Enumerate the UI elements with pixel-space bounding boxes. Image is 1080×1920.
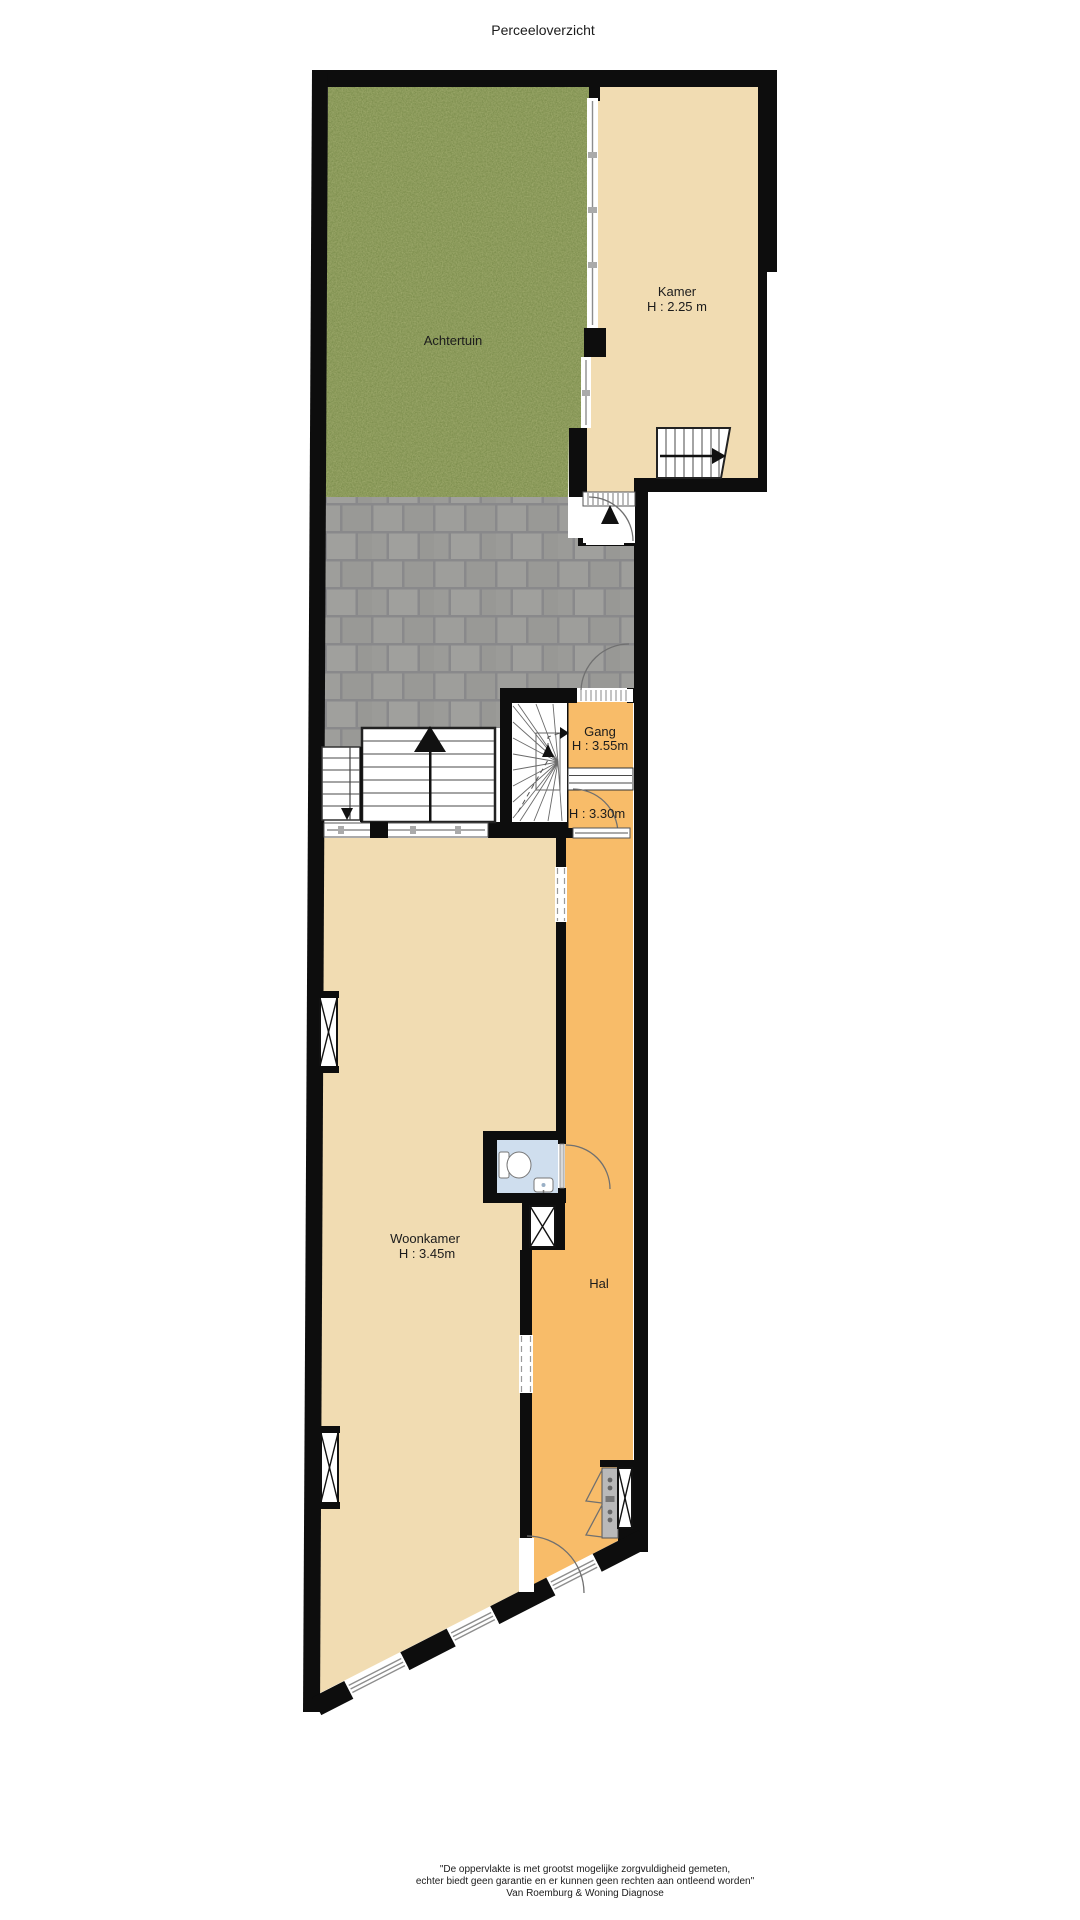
- vestibule-threshold-cap: [566, 828, 573, 838]
- disclaimer-line-1: "De oppervlakte is met grootst mogelijke…: [440, 1864, 730, 1875]
- grass-texture: [315, 80, 605, 505]
- floorplan-canvas: Perceeloverzicht Achtertuin Kamer H : 2.…: [0, 0, 1080, 1920]
- area-fills: [315, 80, 758, 1693]
- side-staircase: [322, 747, 363, 822]
- north-band-center: [512, 822, 566, 838]
- toilet-icon: [499, 1152, 531, 1178]
- toilet-door-leaf: [560, 1144, 564, 1188]
- left-window-upper: [318, 991, 339, 1073]
- gang-height-label: H : 3.55m: [572, 738, 628, 753]
- gang-steps: [568, 768, 633, 790]
- main-staircase: [362, 726, 495, 822]
- stairwell-left-wall: [500, 695, 512, 822]
- left-window-lower: [319, 1426, 340, 1509]
- woonkamer-height-label: H : 3.45m: [399, 1246, 455, 1261]
- page-title: Perceeloverzicht: [491, 22, 595, 38]
- vestibule-threshold: [573, 828, 630, 838]
- disclaimer-line-3: Van Roemburg & Woning Diagnose: [506, 1888, 664, 1899]
- toilet-bottom-wall: [483, 1193, 566, 1203]
- kamer-height-label: H : 2.25 m: [647, 299, 707, 314]
- entry-landing: [583, 492, 635, 545]
- kamer-right-wall-upper: [758, 87, 777, 272]
- sink-icon: [534, 1178, 553, 1193]
- kamer-right-wall-lower: [758, 272, 767, 492]
- kamer-stairs: [657, 428, 730, 478]
- right-wall: [634, 478, 648, 1460]
- hal-label: Hal: [589, 1276, 609, 1291]
- north-band-pier-right: [488, 822, 512, 838]
- vent-shaft: [530, 1206, 555, 1247]
- vestibule-height-label: H : 3.30m: [569, 806, 625, 821]
- kamer-label: Kamer: [658, 284, 697, 299]
- woonkamer-north-windows: [324, 822, 488, 838]
- winder-staircase: [512, 703, 569, 822]
- woonkamer-label: Woonkamer: [390, 1231, 461, 1246]
- top-wall: [312, 70, 777, 87]
- kamer-bottom-wall: [637, 478, 767, 492]
- entrance-niche-top-wall: [600, 1460, 648, 1467]
- disclaimer-line-2: echter biedt geen garantie en er kunnen …: [416, 1876, 755, 1887]
- toilet-door-jamb-bottom: [558, 1188, 566, 1203]
- hal-dashed-opening-upper: [555, 867, 567, 922]
- window-wall-solid: [569, 428, 587, 497]
- toilet-door-jamb-top: [558, 1131, 566, 1144]
- toilet-top-wall: [483, 1131, 566, 1140]
- landing-door-opening: [586, 539, 624, 545]
- entrance-shaft: [618, 1468, 632, 1528]
- perceel-overzicht-page: Perceeloverzicht Achtertuin Kamer H : 2.…: [0, 0, 1080, 1920]
- achtertuin-label: Achtertuin: [424, 333, 483, 348]
- hal-dashed-opening-lower: [519, 1335, 533, 1393]
- window-wall-jog-pier: [584, 328, 606, 357]
- gang-label: Gang: [584, 724, 616, 739]
